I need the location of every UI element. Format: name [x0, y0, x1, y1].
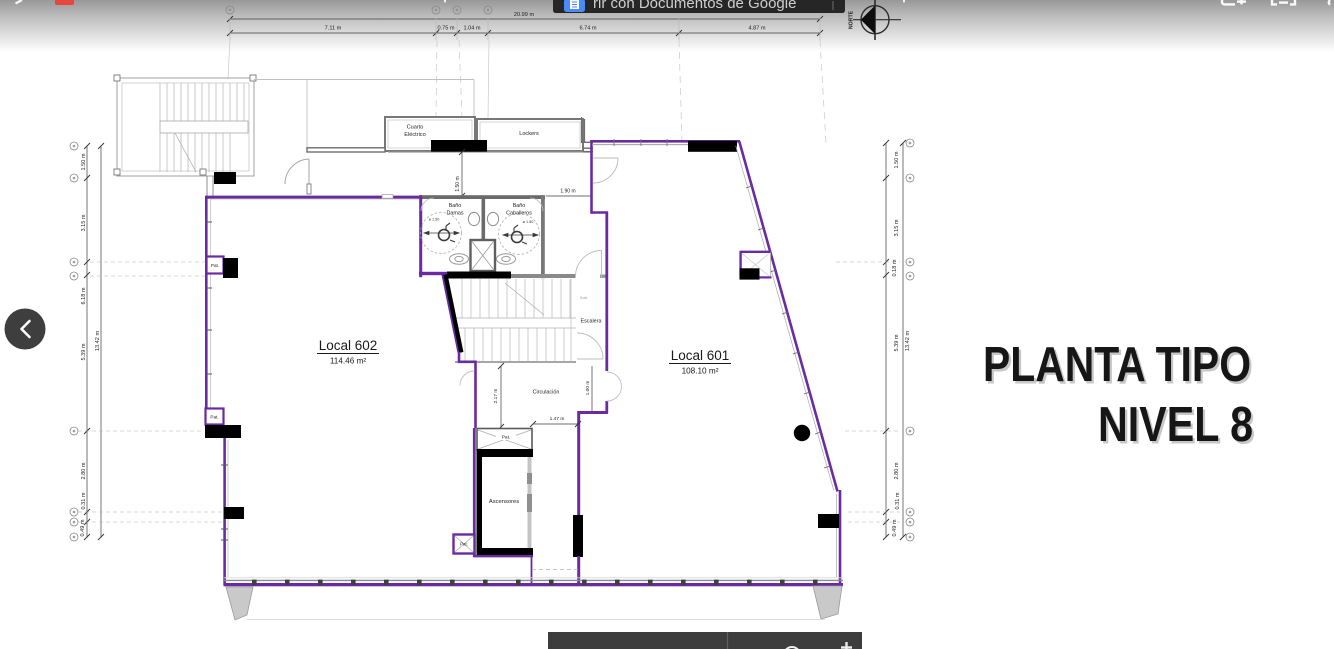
svg-text:1.50 m: 1.50 m [81, 153, 87, 170]
svg-text:Pat.: Pat. [210, 415, 218, 420]
svg-text:Escalera: Escalera [581, 319, 602, 325]
svg-text:20.99 m: 20.99 m [514, 12, 535, 18]
svg-text:0.49 m: 0.49 m [80, 519, 86, 536]
svg-text:NORTE: NORTE [849, 10, 855, 29]
svg-text:Baño: Baño [449, 203, 462, 209]
svg-text:1.50 m: 1.50 m [894, 151, 900, 168]
svg-text:1.50 m: 1.50 m [455, 176, 461, 191]
svg-text:4.87 m: 4.87 m [748, 26, 765, 32]
svg-text:6.18 m: 6.18 m [81, 287, 87, 304]
svg-text:Lockers: Lockers [519, 131, 539, 137]
svg-text:Pat.: Pat. [211, 263, 219, 268]
svg-text:Local 602: Local 602 [319, 338, 378, 353]
svg-text:114.46 m²: 114.46 m² [330, 357, 367, 366]
svg-text:3.15 m: 3.15 m [894, 219, 900, 236]
svg-text:108.10 m²: 108.10 m² [682, 367, 719, 376]
svg-text:0.49 m: 0.49 m [892, 519, 898, 536]
svg-text:2.17 m: 2.17 m [493, 389, 499, 404]
svg-text:rir con Documentos de Google: rir con Documentos de Google [593, 0, 796, 12]
svg-text:Pat.: Pat. [460, 542, 468, 547]
svg-text:2.80 m: 2.80 m [894, 462, 900, 479]
svg-text:Caballeros: Caballeros [506, 211, 532, 217]
svg-text:Circulación: Circulación [533, 390, 560, 396]
svg-text:1.90 m: 1.90 m [560, 189, 575, 195]
svg-text:5.39 m: 5.39 m [894, 334, 900, 351]
svg-text:0.31 m: 0.31 m [81, 492, 87, 509]
svg-text:Sube: Sube [580, 296, 588, 300]
svg-text:5.39 m: 5.39 m [81, 343, 87, 360]
svg-text:Cuarto: Cuarto [407, 125, 424, 131]
svg-text:1.47 m: 1.47 m [550, 416, 565, 422]
svg-text:ø 1.50: ø 1.50 [523, 220, 534, 224]
svg-text:3.15 m: 3.15 m [81, 214, 87, 231]
svg-text:2.80 m: 2.80 m [81, 462, 87, 479]
svg-text:Eléctrico: Eléctrico [404, 132, 425, 138]
svg-text:Local 601: Local 601 [671, 348, 730, 363]
svg-text:0.18 m: 0.18 m [892, 259, 898, 276]
svg-text:1.04 m: 1.04 m [463, 26, 480, 32]
svg-text:6.74 m: 6.74 m [579, 26, 596, 32]
svg-text:NIVEL 8: NIVEL 8 [1098, 398, 1253, 452]
svg-text:1.00 m: 1.00 m [585, 381, 591, 396]
svg-text:13.42 m: 13.42 m [905, 331, 911, 352]
svg-text:Damas: Damas [446, 211, 463, 217]
svg-text:7.11 m: 7.11 m [325, 26, 342, 32]
svg-text:0.75 m: 0.75 m [437, 26, 454, 32]
svg-text:Ascensores: Ascensores [489, 499, 519, 505]
svg-text:13.42 m: 13.42 m [95, 331, 101, 352]
svg-text:Pat.: Pat. [502, 435, 511, 441]
svg-text:PLANTA TIPO: PLANTA TIPO [983, 338, 1251, 392]
svg-text:Baño: Baño [513, 203, 526, 209]
svg-text:ø 1.50: ø 1.50 [429, 218, 440, 222]
svg-text:0.31 m: 0.31 m [895, 492, 901, 509]
